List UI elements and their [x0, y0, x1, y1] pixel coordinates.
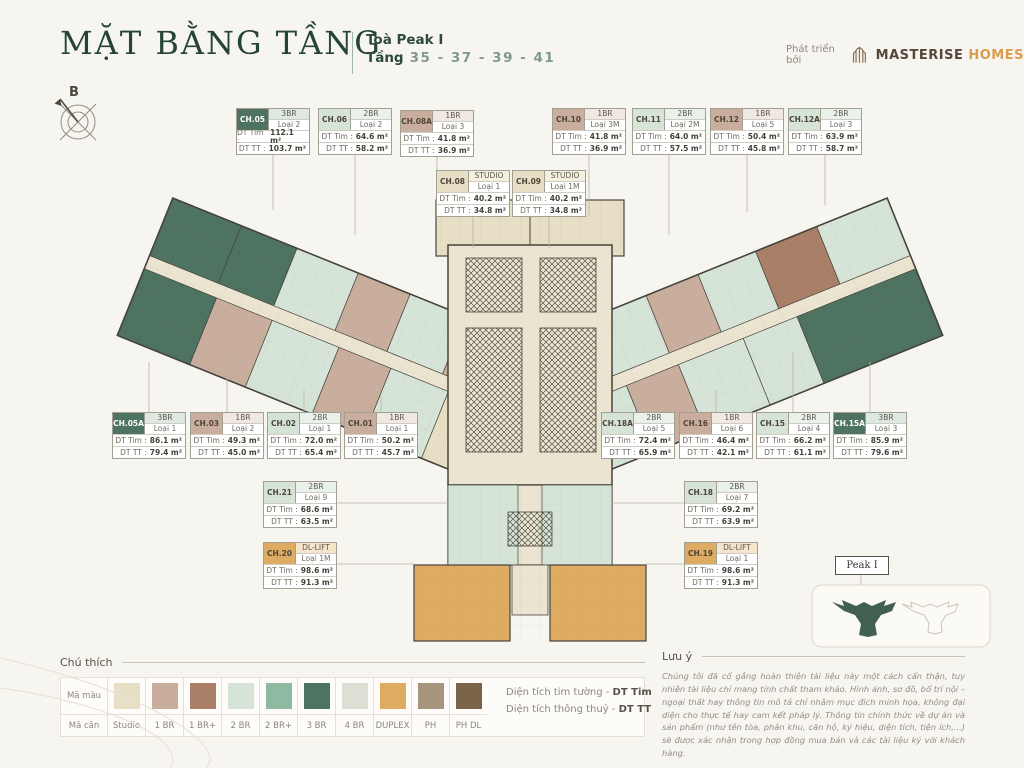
- unit-dt-tt-row: DT TT :63.9 m²: [685, 515, 757, 527]
- unit-variant: Loại 1: [469, 182, 509, 192]
- unit-dt-tim-row: DT Tim :72.0 m²: [268, 434, 340, 446]
- unit-dt-tim-row: DT Tim :41.8 m²: [401, 132, 473, 144]
- unit-code: CH.08A: [401, 111, 433, 132]
- unit-dt-tim-row: DT Tim :69.2 m²: [685, 503, 757, 515]
- unit-card-CH.03: CH.031BRLoại 2DT Tim :49.3 m²DT TT :45.0…: [190, 412, 264, 459]
- unit-dt-tim-row: DT Tim :98.6 m²: [685, 564, 757, 576]
- unit-bedrooms: 2BR: [821, 109, 861, 120]
- unit-variant: Loại 5: [634, 424, 674, 434]
- stem-block: [414, 485, 646, 641]
- unit-bedrooms: 1BR: [585, 109, 625, 120]
- unit-code: CH.03: [191, 413, 223, 434]
- unit-code: CH.21: [264, 482, 296, 503]
- unit-dt-tt-row: DT TT :79.4 m²: [113, 446, 185, 458]
- unit-dt-tt-row: DT TT :58.2 m²: [319, 142, 391, 154]
- unit-bedrooms: DL-LIFT: [296, 543, 336, 554]
- unit-dt-tim-row: DT Tim :68.6 m²: [264, 503, 336, 515]
- unit-bedrooms: STUDIO: [469, 171, 509, 182]
- unit-variant: Loại 4: [789, 424, 829, 434]
- unit-card-CH.15A: CH.15A3BRLoại 3DT Tim :85.9 m²DT TT :79.…: [833, 412, 907, 459]
- unit-bedrooms: 1BR: [712, 413, 752, 424]
- unit-bedrooms: 1BR: [433, 111, 473, 122]
- unit-code: CH.10: [553, 109, 585, 130]
- unit-card-CH.08A: CH.08A1BRLoại 3DT Tim :41.8 m²DT TT :36.…: [400, 110, 474, 157]
- unit-variant: Loại 1M: [545, 182, 585, 192]
- unit-code: CH.18A: [602, 413, 634, 434]
- unit-bedrooms: 3BR: [145, 413, 185, 424]
- unit-dt-tt-row: DT TT :61.1 m²: [757, 446, 829, 458]
- unit-variant: Loại 3: [433, 122, 473, 132]
- unit-dt-tim-row: DT Tim :50.2 m²: [345, 434, 417, 446]
- unit-dt-tim-row: DT Tim :64.6 m²: [319, 130, 391, 142]
- unit-bedrooms: DL-LIFT: [717, 543, 757, 554]
- unit-card-CH.18A: CH.18A2BRLoại 5DT Tim :72.4 m²DT TT :65.…: [601, 412, 675, 459]
- unit-card-CH.16: CH.161BRLoại 6DT Tim :46.4 m²DT TT :42.1…: [679, 412, 753, 459]
- unit-code: CH.06: [319, 109, 351, 130]
- unit-code: CH.05: [237, 109, 269, 130]
- unit-variant: Loại 5: [743, 120, 783, 130]
- unit-code: CH.02: [268, 413, 300, 434]
- unit-bedrooms: 2BR: [634, 413, 674, 424]
- unit-bedrooms: 3BR: [866, 413, 906, 424]
- unit-code: CH.18: [685, 482, 717, 503]
- unit-dt-tt-row: DT TT :36.9 m²: [553, 142, 625, 154]
- unit-bedrooms: 2BR: [300, 413, 340, 424]
- unit-bedrooms: 1BR: [223, 413, 263, 424]
- unit-variant: Loại 7: [717, 493, 757, 503]
- unit-dt-tim-row: DT Tim :112.1 m²: [237, 130, 309, 142]
- unit-dt-tt-row: DT TT :58.7 m²: [789, 142, 861, 154]
- unit-dt-tim-row: DT Tim :98.6 m²: [264, 564, 336, 576]
- unit-dt-tim-row: DT Tim :50.4 m²: [711, 130, 783, 142]
- unit-dt-tt-row: DT TT :45.0 m²: [191, 446, 263, 458]
- unit-dt-tt-row: DT TT :63.5 m²: [264, 515, 336, 527]
- unit-dt-tt-row: DT TT :103.7 m²: [237, 142, 309, 154]
- unit-card-CH.01: CH.011BRLoại 1DT Tim :50.2 m²DT TT :45.7…: [344, 412, 418, 459]
- unit-dt-tt-row: DT TT :91.3 m²: [685, 576, 757, 588]
- unit-dt-tt-row: DT TT :65.4 m²: [268, 446, 340, 458]
- unit-card-CH.10: CH.101BRLoại 3MDT Tim :41.8 m²DT TT :36.…: [552, 108, 626, 155]
- unit-code: CH.09: [513, 171, 545, 192]
- floor-plan-drawing: [0, 0, 1024, 768]
- unit-card-CH.05A: CH.05A3BRLoại 1DT Tim :86.1 m²DT TT :79.…: [112, 412, 186, 459]
- unit-code: CH.19: [685, 543, 717, 564]
- unit-bedrooms: 2BR: [717, 482, 757, 493]
- unit-bedrooms: STUDIO: [545, 171, 585, 182]
- unit-dt-tim-row: DT Tim :63.9 m²: [789, 130, 861, 142]
- unit-code: CH.16: [680, 413, 712, 434]
- unit-dt-tt-row: DT TT :45.8 m²: [711, 142, 783, 154]
- unit-card-CH.11: CH.112BRLoại 2MDT Tim :64.0 m²DT TT :57.…: [632, 108, 706, 155]
- unit-dt-tim-row: DT Tim :64.0 m²: [633, 130, 705, 142]
- unit-card-CH.06: CH.062BRLoại 2DT Tim :64.6 m²DT TT :58.2…: [318, 108, 392, 155]
- unit-variant: Loại 1: [377, 424, 417, 434]
- unit-variant: Loại 3: [866, 424, 906, 434]
- unit-code: CH.05A: [113, 413, 145, 434]
- unit-variant: Loại 3M: [585, 120, 625, 130]
- unit-dt-tim-row: DT Tim :40.2 m²: [437, 192, 509, 204]
- unit-dt-tim-row: DT Tim :41.8 m²: [553, 130, 625, 142]
- unit-variant: Loại 1M: [296, 554, 336, 564]
- unit-dt-tim-row: DT Tim :72.4 m²: [602, 434, 674, 446]
- unit-card-CH.08: CH.08STUDIOLoại 1DT Tim :40.2 m²DT TT :3…: [436, 170, 510, 217]
- unit-code: CH.11: [633, 109, 665, 130]
- unit-dt-tim-row: DT Tim :40.2 m²: [513, 192, 585, 204]
- unit-code: CH.12: [711, 109, 743, 130]
- unit-card-CH.15: CH.152BRLoại 4DT Tim :66.2 m²DT TT :61.1…: [756, 412, 830, 459]
- unit-variant: Loại 1: [145, 424, 185, 434]
- unit-bedrooms: 2BR: [665, 109, 705, 120]
- unit-dt-tim-row: DT Tim :46.4 m²: [680, 434, 752, 446]
- unit-card-CH.09: CH.09STUDIOLoại 1MDT Tim :40.2 m²DT TT :…: [512, 170, 586, 217]
- unit-variant: Loại 2: [223, 424, 263, 434]
- unit-dt-tim-row: DT Tim :85.9 m²: [834, 434, 906, 446]
- unit-bedrooms: 3BR: [269, 109, 309, 120]
- unit-variant: Loại 2: [351, 120, 391, 130]
- unit-dt-tt-row: DT TT :45.7 m²: [345, 446, 417, 458]
- unit-dt-tt-row: DT TT :34.8 m²: [513, 204, 585, 216]
- unit-card-CH.12A: CH.12A2BRLoại 3DT Tim :63.9 m²DT TT :58.…: [788, 108, 862, 155]
- unit-card-CH.19: CH.19DL-LIFTLoại 1DT Tim :98.6 m²DT TT :…: [684, 542, 758, 589]
- unit-dt-tim-row: DT Tim :66.2 m²: [757, 434, 829, 446]
- unit-code: CH.01: [345, 413, 377, 434]
- minimap-label: Peak I: [835, 556, 889, 575]
- unit-dt-tim-row: DT Tim :49.3 m²: [191, 434, 263, 446]
- unit-variant: Loại 1: [717, 554, 757, 564]
- unit-card-CH.02: CH.022BRLoại 1DT Tim :72.0 m²DT TT :65.4…: [267, 412, 341, 459]
- unit-dt-tt-row: DT TT :36.9 m²: [401, 144, 473, 156]
- unit-bedrooms: 1BR: [377, 413, 417, 424]
- unit-dt-tim-row: DT Tim :86.1 m²: [113, 434, 185, 446]
- unit-code: CH.15: [757, 413, 789, 434]
- unit-variant: Loại 1: [300, 424, 340, 434]
- unit-card-CH.21: CH.212BRLoại 9DT Tim :68.6 m²DT TT :63.5…: [263, 481, 337, 528]
- unit-dt-tt-row: DT TT :79.6 m²: [834, 446, 906, 458]
- unit-card-CH.05: CH.053BRLoại 2DT Tim :112.1 m²DT TT :103…: [236, 108, 310, 155]
- unit-bedrooms: 2BR: [789, 413, 829, 424]
- unit-code: CH.12A: [789, 109, 821, 130]
- site-minimap: [812, 585, 990, 647]
- central-core: [436, 200, 624, 485]
- unit-bedrooms: 1BR: [743, 109, 783, 120]
- unit-dt-tt-row: DT TT :42.1 m²: [680, 446, 752, 458]
- compass-icon: [55, 99, 97, 140]
- unit-card-CH.12: CH.121BRLoại 5DT Tim :50.4 m²DT TT :45.8…: [710, 108, 784, 155]
- unit-variant: Loại 6: [712, 424, 752, 434]
- unit-code: CH.20: [264, 543, 296, 564]
- unit-dt-tt-row: DT TT :34.8 m²: [437, 204, 509, 216]
- unit-code: CH.08: [437, 171, 469, 192]
- unit-dt-tt-row: DT TT :65.9 m²: [602, 446, 674, 458]
- decorative-curves: [0, 658, 210, 768]
- unit-variant: Loại 2M: [665, 120, 705, 130]
- unit-dt-tt-row: DT TT :91.3 m²: [264, 576, 336, 588]
- unit-card-CH.18: CH.182BRLoại 7DT Tim :69.2 m²DT TT :63.9…: [684, 481, 758, 528]
- unit-bedrooms: 2BR: [296, 482, 336, 493]
- unit-variant: Loại 3: [821, 120, 861, 130]
- unit-code: CH.15A: [834, 413, 866, 434]
- unit-card-CH.20: CH.20DL-LIFTLoại 1MDT Tim :98.6 m²DT TT …: [263, 542, 337, 589]
- unit-dt-tt-row: DT TT :57.5 m²: [633, 142, 705, 154]
- unit-bedrooms: 2BR: [351, 109, 391, 120]
- unit-variant: Loại 9: [296, 493, 336, 503]
